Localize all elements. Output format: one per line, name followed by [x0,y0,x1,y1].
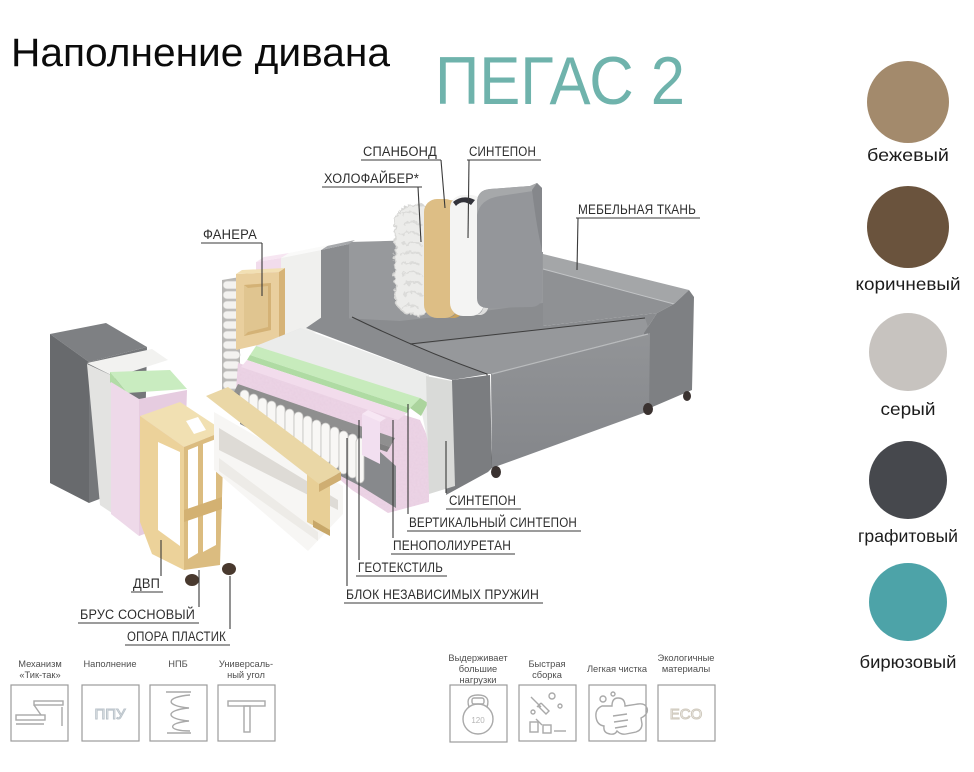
svg-text:Легкая чистка: Легкая чистка [587,664,648,674]
svg-text:ПЕНОПОЛИУРЕТАН: ПЕНОПОЛИУРЕТАН [393,538,511,553]
svg-text:ППУ: ППУ [94,706,126,723]
svg-text:графитовый: графитовый [858,526,958,546]
svg-text:«Тик-так»: «Тик-так» [19,670,60,680]
svg-text:материалы: материалы [662,664,711,674]
svg-text:Наполнение: Наполнение [83,659,136,669]
svg-text:Наполнение дивана: Наполнение дивана [11,31,391,75]
svg-text:Универсаль-: Универсаль- [219,659,273,669]
svg-text:ПЕГАС 2: ПЕГАС 2 [435,43,685,119]
svg-text:БРУС СОСНОВЫЙ: БРУС СОСНОВЫЙ [80,607,195,622]
svg-text:МЕБЕЛЬНАЯ ТКАНЬ: МЕБЕЛЬНАЯ ТКАНЬ [578,202,696,217]
svg-text:ХОЛОФАЙБЕР*: ХОЛОФАЙБЕР* [324,171,420,186]
svg-text:бирюзовый: бирюзовый [860,652,957,672]
svg-text:сборка: сборка [532,670,563,680]
svg-text:Механизм: Механизм [18,659,62,669]
svg-text:НПБ: НПБ [168,659,188,669]
svg-text:СИНТЕПОН: СИНТЕПОН [449,493,516,508]
svg-text:ФАНЕРА: ФАНЕРА [203,227,257,242]
svg-text:ДВП: ДВП [133,576,160,591]
svg-text:ный угол: ный угол [227,670,265,680]
svg-text:ВЕРТИКАЛЬНЫЙ СИНТЕПОН: ВЕРТИКАЛЬНЫЙ СИНТЕПОН [409,515,577,530]
svg-text:большие: большие [459,664,497,674]
svg-text:120: 120 [471,716,485,725]
svg-text:СПАНБОНД: СПАНБОНД [363,144,437,159]
svg-text:ГЕОТЕКСТИЛЬ: ГЕОТЕКСТИЛЬ [358,560,443,575]
svg-text:Экологичные: Экологичные [658,653,715,663]
svg-text:СИНТЕПОН: СИНТЕПОН [469,144,536,159]
svg-text:коричневый: коричневый [856,274,961,294]
svg-text:Быстрая: Быстрая [528,659,565,669]
svg-text:нагрузки: нагрузки [460,675,497,685]
svg-text:ECO: ECO [670,706,703,723]
svg-text:ОПОРА ПЛАСТИК: ОПОРА ПЛАСТИК [127,629,226,644]
svg-text:бежевый: бежевый [867,145,949,165]
svg-text:БЛОК НЕЗАВИСИМЫХ ПРУЖИН: БЛОК НЕЗАВИСИМЫХ ПРУЖИН [346,587,539,602]
svg-text:серый: серый [881,399,936,419]
svg-text:Выдерживает: Выдерживает [448,653,508,663]
